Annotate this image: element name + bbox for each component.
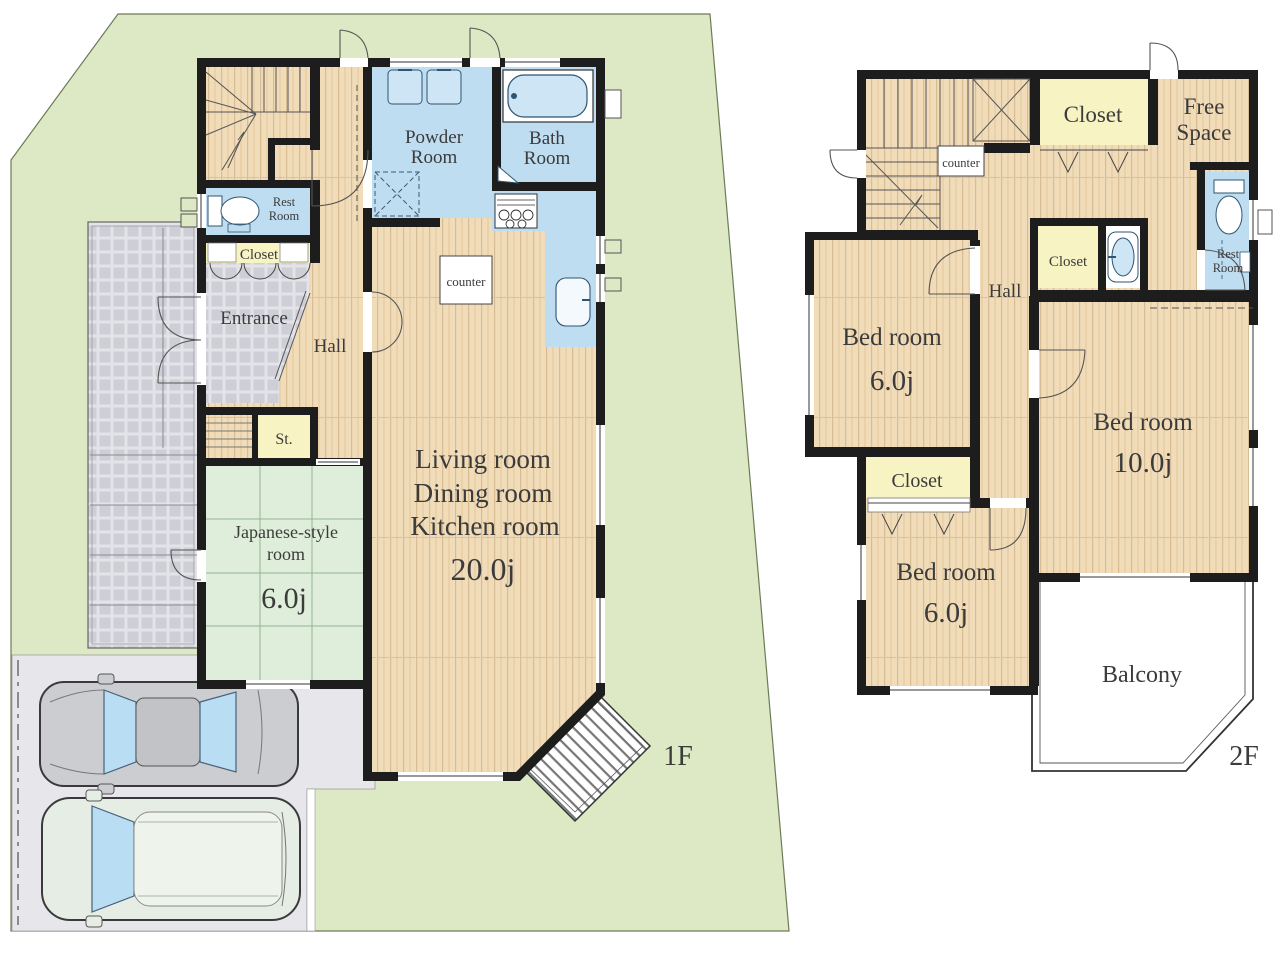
ldk-label-living: Living room bbox=[415, 444, 551, 474]
counter-label-2f: counter bbox=[942, 156, 980, 170]
parking-fence bbox=[307, 789, 315, 931]
kitchen-sink-icon bbox=[556, 278, 590, 326]
floor2-label: 2F bbox=[1229, 741, 1259, 772]
storage-label: St. bbox=[275, 431, 292, 448]
closet-left-label: Closet bbox=[891, 470, 943, 492]
hall-label-1f: Hall bbox=[314, 336, 347, 357]
floorplan-page: Powder Room Bath Room Rest Room Closet E… bbox=[0, 0, 1280, 960]
floor1-plan: Powder Room Bath Room Rest Room Closet E… bbox=[158, 28, 621, 781]
rest-room-label-2f: Rest bbox=[1217, 247, 1240, 261]
f2-exterior-fitting bbox=[1258, 210, 1272, 234]
approach-walkway bbox=[88, 222, 198, 648]
nook-sink-icon bbox=[1108, 232, 1138, 282]
floor1-label: 1F bbox=[663, 741, 693, 772]
minivan-windshield bbox=[92, 806, 134, 912]
bedroom-bottom-size: 6.0j bbox=[924, 597, 968, 629]
closet-hall-label: Closet bbox=[1049, 254, 1088, 270]
floorplan-drawing: Powder Room Bath Room Rest Room Closet E… bbox=[0, 0, 1280, 960]
bedroom-right-size: 10.0j bbox=[1114, 447, 1173, 479]
bathtub-icon bbox=[503, 70, 593, 122]
sedan-rear-window bbox=[200, 692, 236, 772]
ldk-label-kitchen: Kitchen room bbox=[410, 511, 559, 541]
rest-room-label2-1f: Room bbox=[269, 209, 300, 223]
japanese-room-label: Japanese-style bbox=[234, 522, 338, 542]
rest-room-label-1f: Rest bbox=[273, 195, 296, 209]
sedan-windshield bbox=[104, 690, 136, 774]
powder-room-label: Powder bbox=[405, 127, 464, 148]
free-space-label2: Space bbox=[1177, 120, 1232, 145]
car-sedan bbox=[40, 674, 298, 794]
bedroom-right-label: Bed room bbox=[1093, 409, 1193, 436]
hall-label-2f: Hall bbox=[989, 281, 1022, 302]
balcony-label: Balcony bbox=[1102, 662, 1182, 688]
powder-room-label2: Room bbox=[411, 147, 458, 168]
free-space-label: Free bbox=[1184, 94, 1225, 119]
bedroom-left-label: Bed room bbox=[842, 324, 942, 351]
bedroom-bottom-label: Bed room bbox=[896, 559, 996, 586]
counter-label-1f: counter bbox=[447, 274, 487, 289]
stove-icon bbox=[495, 194, 537, 228]
bath-room-label: Bath bbox=[529, 128, 565, 149]
bath-room-label2: Room bbox=[524, 148, 571, 169]
japanese-room-label2: room bbox=[267, 544, 305, 564]
closet-label-1f: Closet bbox=[240, 247, 279, 263]
ldk-size: 20.0j bbox=[451, 551, 516, 587]
closet-top-label: Closet bbox=[1064, 102, 1123, 127]
car-minivan bbox=[42, 790, 300, 927]
entrance-label: Entrance bbox=[220, 308, 288, 329]
japanese-room-size: 6.0j bbox=[261, 582, 307, 615]
ldk-label-dining: Dining room bbox=[414, 478, 553, 508]
rest-room-label2-2f: Room bbox=[1213, 261, 1244, 275]
bedroom-left-size: 6.0j bbox=[870, 365, 914, 397]
